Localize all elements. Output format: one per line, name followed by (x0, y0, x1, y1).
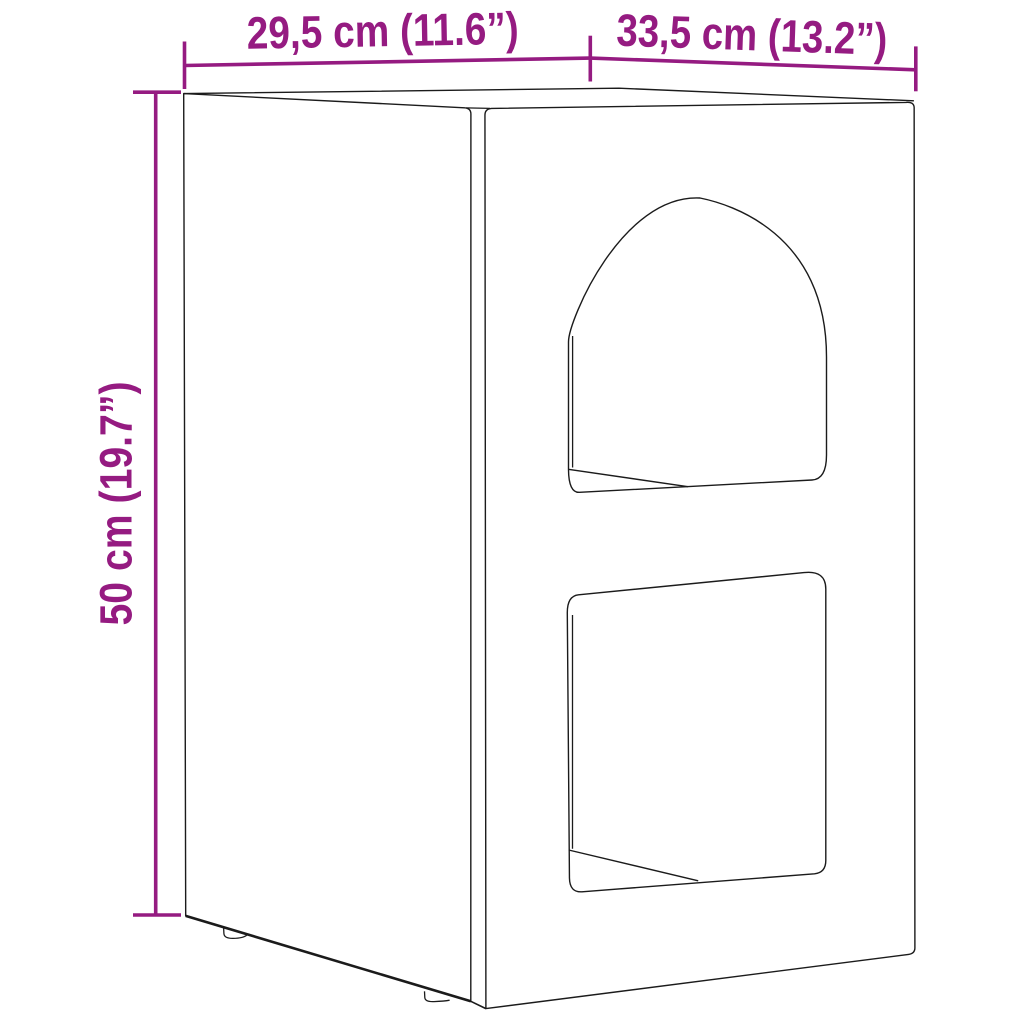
svg-text:33,5 cm (13.2”): 33,5 cm (13.2”) (616, 5, 889, 65)
svg-text:29,5 cm (11.6”): 29,5 cm (11.6”) (246, 3, 519, 59)
svg-text:50 cm (19.7”): 50 cm (19.7”) (91, 382, 142, 626)
